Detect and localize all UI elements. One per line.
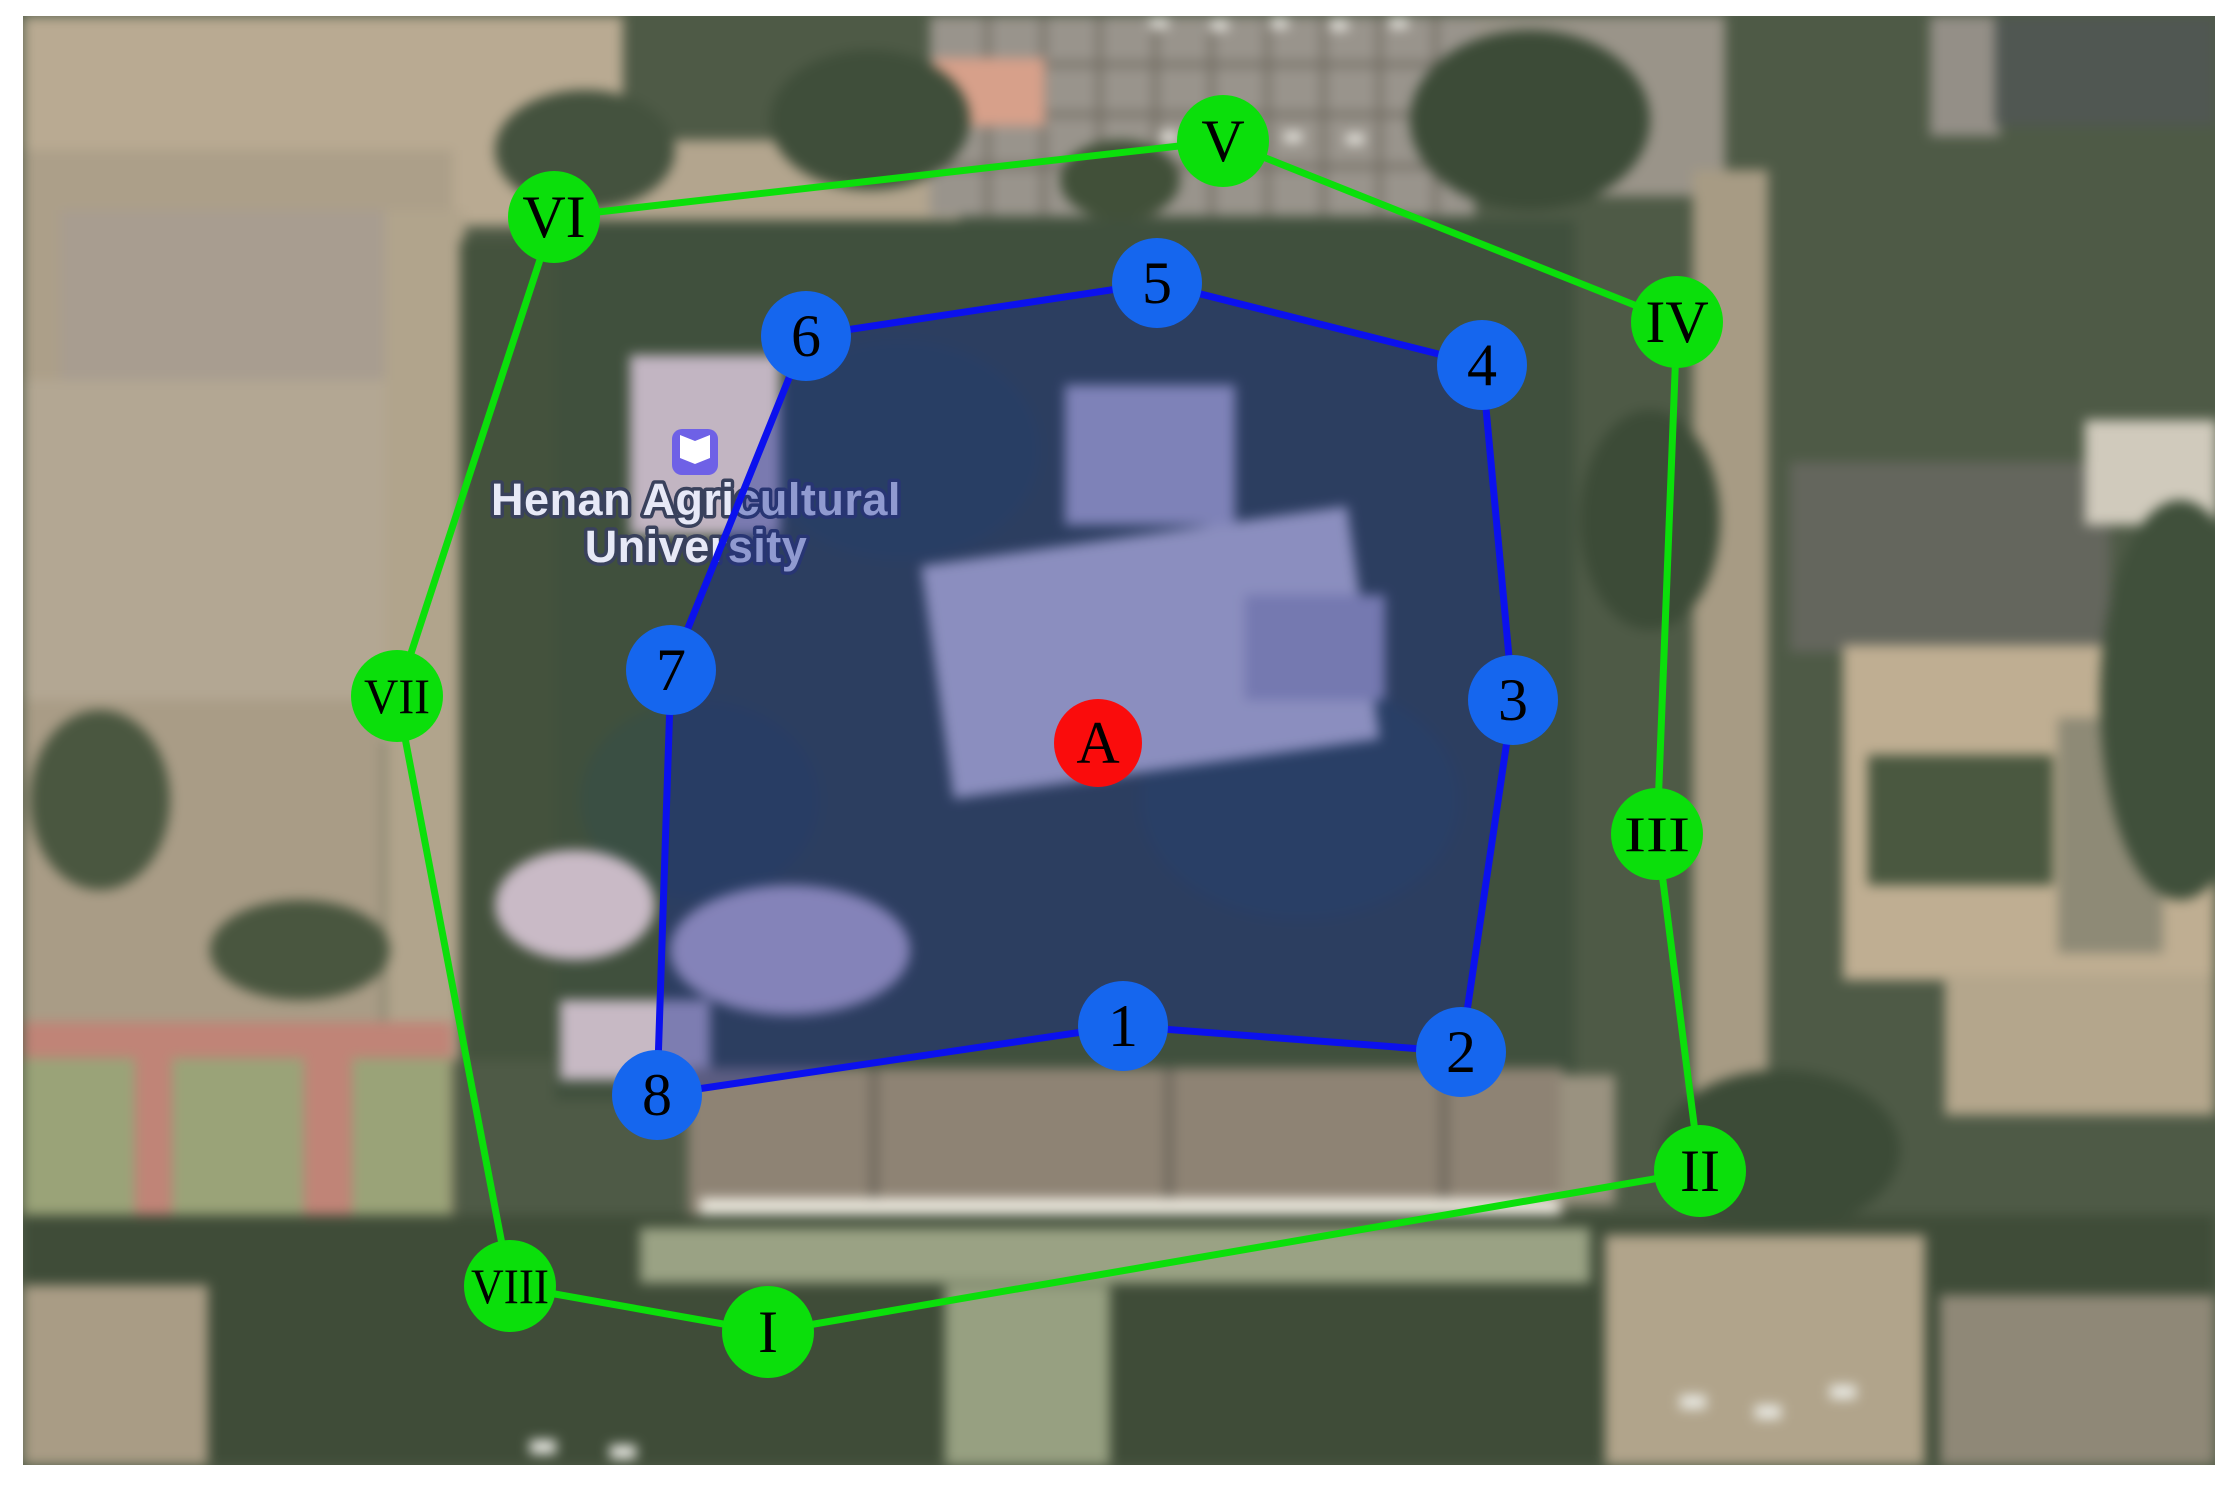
- plot-marker-label-8: 8: [642, 1062, 672, 1128]
- education-book-icon: [672, 429, 718, 475]
- route-marker-label-IV: IV: [1645, 289, 1708, 355]
- site-marker-label-A: A: [1076, 710, 1119, 776]
- route-marker-label-VIII: VIII: [471, 1258, 549, 1314]
- route-marker-label-II: II: [1680, 1138, 1720, 1204]
- route-marker-label-I: I: [758, 1299, 778, 1365]
- plot-boundary-polygon: [657, 283, 1513, 1095]
- route-marker-label-III: III: [1624, 806, 1690, 862]
- plot-marker-label-3: 3: [1498, 667, 1528, 733]
- plot-marker-label-1: 1: [1108, 993, 1138, 1059]
- plot-marker-label-6: 6: [791, 303, 821, 369]
- plot-marker-label-4: 4: [1467, 332, 1497, 398]
- figure-annotated-satellite-map: Henan Agricultural University 12345678II…: [0, 0, 2234, 1485]
- route-marker-label-VII: VII: [364, 668, 430, 724]
- map-canvas: Henan Agricultural University 12345678II…: [0, 0, 2234, 1485]
- route-marker-label-VI: VI: [522, 184, 585, 250]
- plot-marker-label-5: 5: [1142, 250, 1172, 316]
- route-marker-label-V: V: [1201, 108, 1244, 174]
- plot-marker-label-2: 2: [1446, 1019, 1476, 1085]
- plot-marker-label-7: 7: [656, 637, 686, 703]
